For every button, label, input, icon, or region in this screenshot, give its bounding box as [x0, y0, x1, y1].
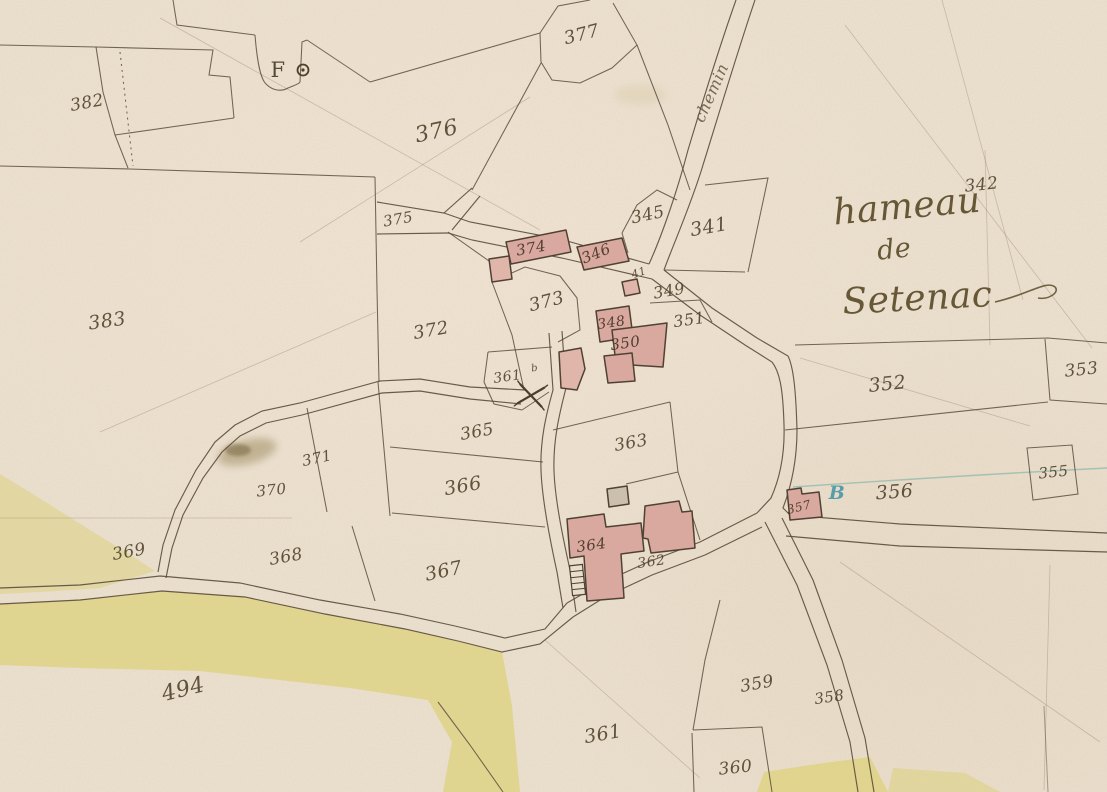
- paper-grain: [0, 0, 1107, 792]
- parcel-label-370: 370: [256, 480, 288, 501]
- cadastral-map: 382F377376chemin342hameaudeSetenac375374…: [0, 0, 1107, 792]
- parcel-label-355: 355: [1038, 462, 1070, 483]
- parcel-label-360: 360: [718, 756, 754, 779]
- parcel-label-f: F: [270, 58, 285, 82]
- paper-layer: [0, 0, 1107, 792]
- cadastral-map-canvas: 382F377376chemin342hameaudeSetenac375374…: [0, 0, 1107, 792]
- paper-smudge: [614, 85, 666, 105]
- fountain-dot: [301, 68, 304, 71]
- building-350-annex: [604, 353, 635, 383]
- hamlet-title-setenac: Setenac: [841, 274, 993, 323]
- parcel-label-356: 356: [875, 480, 914, 505]
- building-small: [622, 279, 640, 296]
- hamlet-title-de: de: [875, 232, 912, 266]
- annex-outline: [569, 564, 585, 595]
- parcel-label-b: B: [828, 482, 846, 504]
- hatched-annex-icon: [569, 564, 585, 595]
- building-unshaded: [607, 486, 629, 507]
- parcel-label-352: 352: [867, 371, 907, 397]
- building-small: [489, 256, 512, 282]
- parcel-label-353: 353: [1064, 358, 1100, 381]
